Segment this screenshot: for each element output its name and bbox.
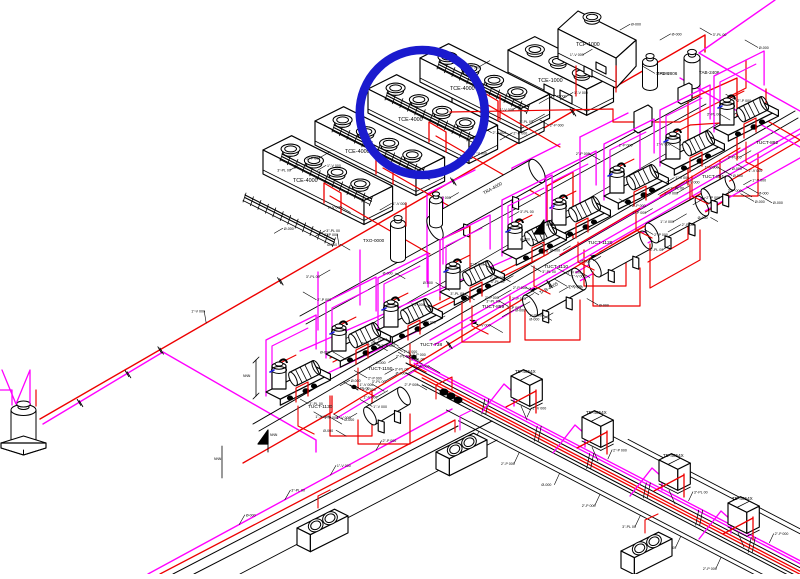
svg-text:3"-PL 00: 3"-PL 00 — [373, 338, 387, 342]
svg-text:2"-P 000: 2"-P 000 — [513, 131, 527, 135]
svg-text:Ø-000: Ø-000 — [327, 243, 337, 247]
svg-text:TCP-1000: TCP-1000 — [576, 42, 600, 48]
svg-text:1"-V 000: 1"-V 000 — [328, 205, 342, 209]
svg-text:Ø-000: Ø-000 — [423, 281, 433, 285]
svg-text:TE-4054X: TE-4054X — [515, 369, 536, 374]
svg-text:Ø-000: Ø-000 — [284, 227, 294, 231]
svg-text:NNN: NNN — [270, 433, 278, 437]
svg-text:1"-V 000: 1"-V 000 — [500, 108, 514, 112]
svg-text:1"-V 000: 1"-V 000 — [364, 396, 378, 400]
svg-text:Ø-000: Ø-000 — [323, 429, 333, 433]
svg-text:2"-P 000: 2"-P 000 — [576, 152, 590, 156]
svg-text:2"-P 000: 2"-P 000 — [512, 297, 526, 301]
svg-text:Ø-000: Ø-000 — [759, 46, 769, 50]
svg-text:2"-P 000: 2"-P 000 — [737, 99, 751, 103]
svg-text:2"-P 000: 2"-P 000 — [485, 296, 499, 300]
svg-text:2"-P 000: 2"-P 000 — [513, 286, 527, 290]
svg-text:2"-P 000: 2"-P 000 — [728, 189, 742, 193]
svg-text:TUCT-1120: TUCT-1120 — [588, 240, 613, 246]
svg-text:1"-V 000: 1"-V 000 — [477, 324, 491, 328]
svg-text:3"-PL 00: 3"-PL 00 — [309, 402, 323, 406]
svg-text:Ø-000: Ø-000 — [376, 361, 386, 365]
svg-text:3"-PL 00: 3"-PL 00 — [656, 72, 670, 76]
svg-text:3"-PL 00: 3"-PL 00 — [542, 270, 556, 274]
svg-text:1"-V 000: 1"-V 000 — [393, 202, 407, 206]
svg-text:TE-4054X: TE-4054X — [732, 496, 753, 501]
svg-text:1"-V 000: 1"-V 000 — [327, 164, 341, 168]
svg-text:3"-PL 00: 3"-PL 00 — [670, 187, 684, 191]
svg-text:3"-PL 00: 3"-PL 00 — [361, 342, 375, 346]
svg-text:2"-P 000: 2"-P 000 — [411, 303, 425, 307]
svg-text:3"-PL 00: 3"-PL 00 — [707, 113, 721, 117]
svg-text:Ø-000: Ø-000 — [550, 249, 560, 253]
svg-text:2"-P 000: 2"-P 000 — [422, 320, 436, 324]
svg-text:2"-P 000: 2"-P 000 — [317, 298, 331, 302]
svg-text:1"-V 000: 1"-V 000 — [360, 383, 374, 387]
svg-text:Ø-000: Ø-000 — [541, 483, 551, 487]
svg-text:Ø-000: Ø-000 — [580, 259, 590, 263]
svg-text:2"-P 000: 2"-P 000 — [501, 462, 515, 466]
svg-text:2"-P 000: 2"-P 000 — [437, 196, 451, 200]
svg-text:Ø-000: Ø-000 — [246, 514, 256, 518]
svg-text:2"-P 000: 2"-P 000 — [405, 383, 419, 387]
svg-text:1"-V 000: 1"-V 000 — [748, 169, 762, 173]
svg-text:2"-P 000: 2"-P 000 — [706, 196, 720, 200]
svg-text:2"-P 000: 2"-P 000 — [619, 143, 633, 147]
svg-text:NNN: NNN — [214, 457, 222, 461]
svg-text:2"-P 000: 2"-P 000 — [324, 233, 338, 237]
svg-text:TUCT-892: TUCT-892 — [756, 140, 778, 146]
svg-text:Ø-000: Ø-000 — [773, 201, 783, 205]
svg-text:3"-PL 00: 3"-PL 00 — [396, 355, 410, 359]
svg-text:2"-P 000: 2"-P 000 — [632, 211, 646, 215]
svg-text:1"-V 000: 1"-V 000 — [705, 166, 719, 170]
svg-text:2"-P 000: 2"-P 000 — [362, 388, 376, 392]
svg-text:TUCT-1150: TUCT-1150 — [368, 366, 393, 372]
svg-text:1"-V 000: 1"-V 000 — [574, 91, 588, 95]
svg-text:3"-PL 00: 3"-PL 00 — [291, 489, 305, 493]
svg-text:Ø-000: Ø-000 — [383, 272, 393, 276]
svg-text:1"-V 000: 1"-V 000 — [403, 350, 417, 354]
svg-text:1"-V 000: 1"-V 000 — [337, 416, 351, 420]
svg-text:NNN: NNN — [546, 223, 554, 227]
svg-text:3"-PL 00: 3"-PL 00 — [519, 120, 533, 124]
svg-text:Ø-000: Ø-000 — [396, 372, 406, 376]
svg-text:2"-P 000: 2"-P 000 — [553, 95, 567, 99]
svg-text:2"-P 000: 2"-P 000 — [306, 156, 320, 160]
svg-text:3"-PL 00: 3"-PL 00 — [622, 525, 636, 529]
svg-text:2"-P 000: 2"-P 000 — [582, 504, 596, 508]
svg-text:1"-V 000: 1"-V 000 — [570, 53, 584, 57]
svg-text:TUCT-891: TUCT-891 — [702, 174, 724, 180]
svg-text:2"-P 000: 2"-P 000 — [613, 448, 627, 452]
svg-text:TUCT-859: TUCT-859 — [482, 304, 504, 310]
svg-text:Ø-000: Ø-000 — [672, 32, 682, 36]
svg-text:NNN: NNN — [243, 374, 251, 378]
svg-text:2"-P 000: 2"-P 000 — [568, 285, 582, 289]
svg-text:1"-V 000: 1"-V 000 — [664, 192, 678, 196]
svg-text:1"-V 000: 1"-V 000 — [529, 313, 543, 317]
svg-text:TXO-0000: TXO-0000 — [363, 238, 385, 243]
svg-text:TCE-4000: TCE-4000 — [293, 178, 318, 184]
svg-text:TCE-4000: TCE-4000 — [345, 149, 370, 155]
svg-text:Ø-000: Ø-000 — [698, 216, 708, 220]
svg-text:2"-P 000: 2"-P 000 — [703, 567, 717, 571]
svg-text:2"-P 000: 2"-P 000 — [632, 204, 646, 208]
svg-text:3"-PL 00: 3"-PL 00 — [411, 357, 425, 361]
svg-text:3"-PL 00: 3"-PL 00 — [650, 248, 664, 252]
svg-text:Ø-000: Ø-000 — [529, 318, 539, 322]
svg-text:1"-V 000: 1"-V 000 — [373, 405, 387, 409]
svg-text:1"-V 000: 1"-V 000 — [686, 180, 700, 184]
svg-text:2"-P 000: 2"-P 000 — [470, 263, 484, 267]
svg-text:2"-P 000: 2"-P 000 — [383, 439, 397, 443]
svg-text:3"-PL 00: 3"-PL 00 — [372, 380, 386, 384]
svg-text:3"-PL 00: 3"-PL 00 — [713, 33, 727, 37]
svg-text:Ø-000: Ø-000 — [733, 174, 743, 178]
svg-text:2"-P 000: 2"-P 000 — [550, 124, 564, 128]
svg-text:1"-V 000: 1"-V 000 — [572, 274, 586, 278]
svg-text:TCE-1000: TCE-1000 — [538, 78, 563, 84]
svg-text:1"-V 000: 1"-V 000 — [191, 310, 205, 314]
svg-text:TCE-4000: TCE-4000 — [398, 117, 423, 123]
svg-text:2"-P 000: 2"-P 000 — [682, 223, 696, 227]
svg-text:Ø-000: Ø-000 — [320, 350, 330, 354]
svg-text:TE-4054X: TE-4054X — [586, 410, 607, 415]
svg-text:1"-V 000: 1"-V 000 — [337, 464, 351, 468]
svg-text:2"-P 000: 2"-P 000 — [654, 233, 668, 237]
svg-text:Ø-000: Ø-000 — [759, 191, 769, 195]
svg-text:3"-PL 00: 3"-PL 00 — [694, 490, 708, 494]
svg-text:3"-PL 00: 3"-PL 00 — [491, 280, 505, 284]
svg-text:3"-PL 00: 3"-PL 00 — [520, 210, 534, 214]
svg-text:3"-PL 00: 3"-PL 00 — [277, 169, 291, 173]
svg-text:3"-PL 00: 3"-PL 00 — [306, 275, 320, 279]
svg-text:2"-P 000: 2"-P 000 — [775, 532, 789, 536]
svg-text:TCE-4000: TCE-4000 — [450, 86, 475, 92]
svg-text:Ø-000: Ø-000 — [515, 308, 525, 312]
svg-text:3"-PL 00: 3"-PL 00 — [450, 292, 464, 296]
svg-text:1"-V 000: 1"-V 000 — [657, 142, 671, 146]
svg-text:1"-V 000: 1"-V 000 — [660, 220, 674, 224]
svg-text:2"-P 000: 2"-P 000 — [493, 131, 507, 135]
svg-text:Ø-000: Ø-000 — [520, 237, 530, 241]
svg-text:Ø-000: Ø-000 — [755, 200, 765, 204]
svg-text:1"-V 000: 1"-V 000 — [752, 179, 766, 183]
svg-text:Ø-000: Ø-000 — [732, 167, 742, 171]
svg-text:Ø-000: Ø-000 — [631, 23, 641, 27]
svg-text:TUCT-738: TUCT-738 — [420, 342, 442, 348]
svg-text:Ø-000: Ø-000 — [599, 303, 609, 307]
svg-text:3"-PL 00: 3"-PL 00 — [728, 155, 742, 159]
svg-text:TE-4054X: TE-4054X — [663, 453, 684, 458]
